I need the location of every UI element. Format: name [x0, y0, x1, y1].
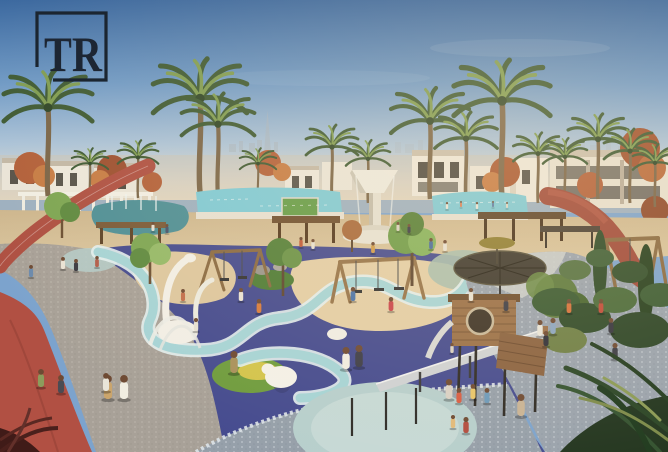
scene-svg: TR	[0, 0, 668, 452]
logo-text: TR	[44, 26, 103, 82]
park-rendering-image: TR	[0, 0, 668, 452]
